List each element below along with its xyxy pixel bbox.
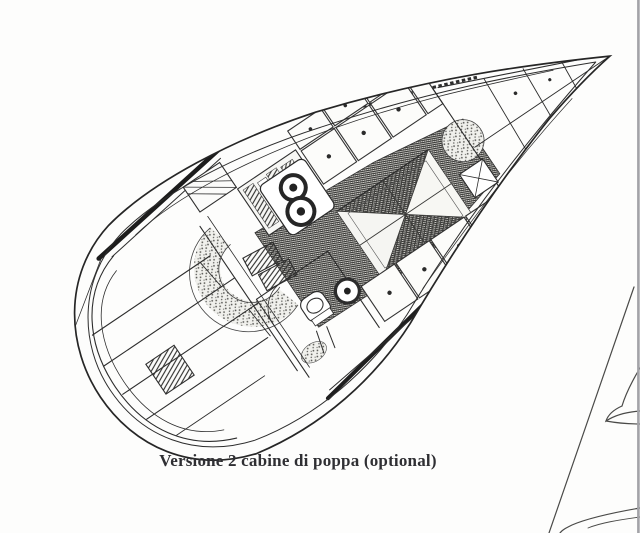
- adjacent-drawing-fragment: [549, 287, 640, 533]
- hull-curve-fragment: [560, 508, 640, 533]
- keel-wing-fragment: [606, 406, 640, 421]
- scanned-brochure-page: Versione 2 cabine di poppa (optional): [0, 0, 640, 533]
- boat-plan: [21, 0, 640, 514]
- figure-caption: Versione 2 cabine di poppa (optional): [128, 450, 468, 471]
- sail-edge-line: [549, 287, 634, 533]
